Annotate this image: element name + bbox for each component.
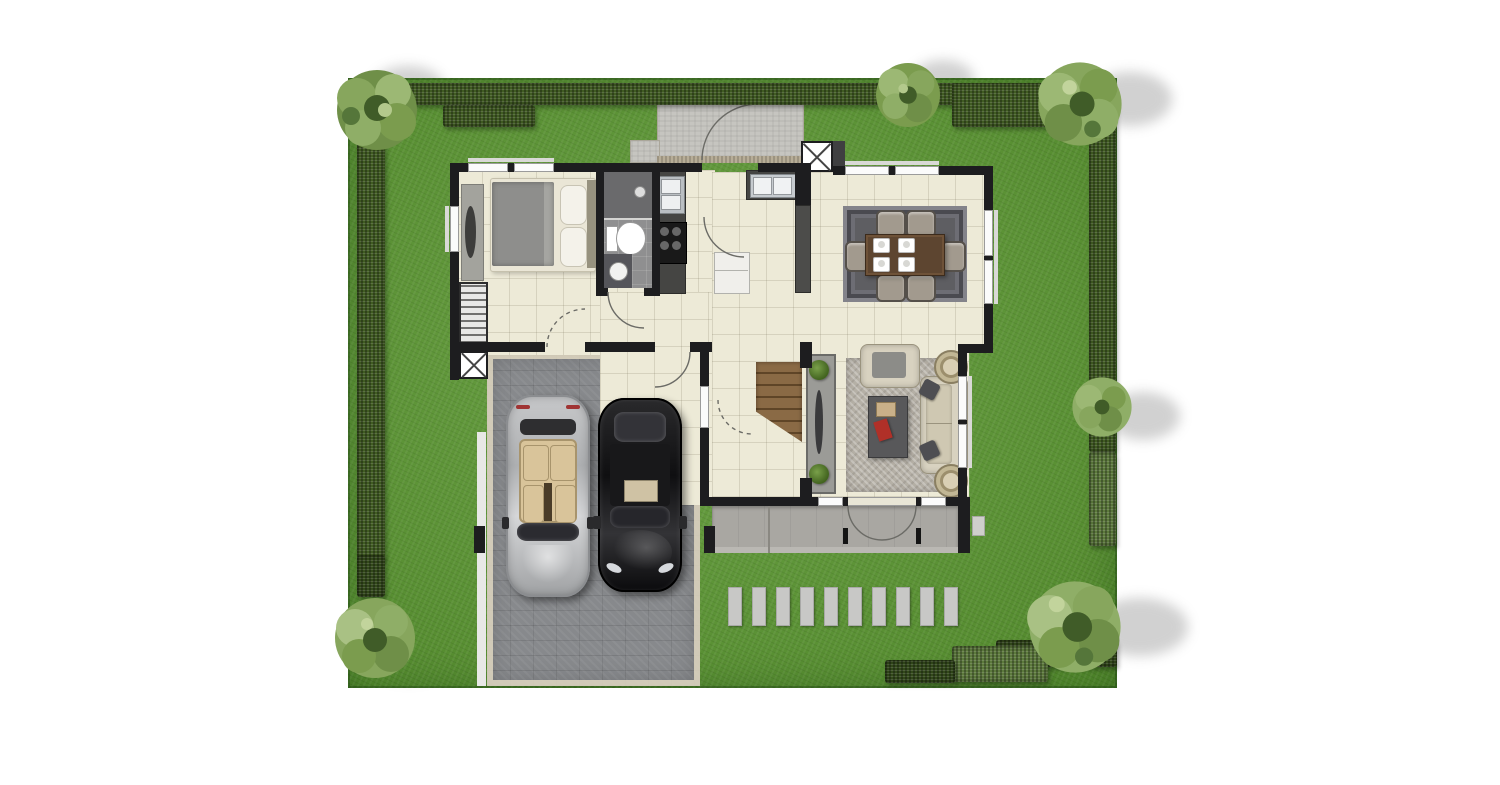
stepping-stone	[776, 587, 790, 626]
porch-threshold	[657, 156, 802, 163]
bed-pillow	[560, 185, 587, 225]
taillight	[516, 405, 530, 409]
terrace-door-opening	[848, 497, 916, 506]
window	[818, 497, 843, 506]
dining-chair	[906, 274, 936, 302]
window-sill	[845, 161, 939, 165]
glass-partition	[604, 218, 652, 220]
window-sill	[968, 376, 972, 468]
wall-stub	[800, 342, 812, 368]
car-seat	[555, 485, 576, 523]
fridge	[714, 252, 750, 294]
wall-partition	[644, 288, 660, 296]
stepping-stone	[800, 587, 814, 626]
window-sill	[994, 210, 998, 304]
hood-highlight	[520, 545, 576, 585]
window	[450, 206, 459, 252]
car-seat	[550, 445, 576, 481]
window	[895, 166, 939, 175]
sink-basin	[661, 195, 681, 210]
stepping-stone	[752, 587, 766, 626]
car-seat	[523, 445, 549, 481]
hedge-left-end	[357, 555, 385, 597]
armchair-cushion	[872, 352, 906, 378]
burner	[660, 241, 669, 250]
place-setting	[873, 238, 890, 253]
stepping-stone	[920, 587, 934, 626]
driveway-curb	[477, 432, 486, 686]
silver-convertible	[506, 395, 590, 597]
wall-stub	[800, 478, 812, 506]
wall-partition	[652, 163, 660, 295]
windshield	[610, 506, 670, 528]
bench-runner	[465, 206, 476, 258]
hedge-right-lower	[1089, 452, 1116, 546]
terrace-joint	[768, 505, 770, 553]
bed-pillow	[560, 227, 587, 267]
window	[984, 210, 993, 256]
burner	[672, 227, 681, 236]
side-mirror	[679, 516, 687, 529]
window-sill	[445, 206, 449, 252]
dining-chair	[876, 274, 906, 302]
tray	[876, 402, 896, 417]
stepping-stone	[848, 587, 862, 626]
sink-basin	[773, 177, 792, 195]
ac-pad	[972, 516, 985, 536]
hedge-right-upper	[1089, 100, 1116, 452]
center-console	[544, 483, 552, 521]
sink-basin	[753, 177, 772, 195]
terrace-door-leaf	[916, 528, 921, 544]
rear-window	[614, 412, 666, 442]
hedge-bottom-left-strip	[885, 660, 955, 683]
terrace-step-edge	[712, 547, 958, 553]
window	[958, 376, 967, 420]
entry-porch	[657, 95, 804, 163]
sunroof	[624, 480, 658, 502]
window	[514, 163, 554, 172]
wall-stub	[795, 163, 811, 205]
wall	[585, 342, 655, 352]
console-runner	[815, 390, 823, 454]
wall-corner-column	[958, 497, 970, 553]
garage-pillar	[704, 526, 715, 553]
wall	[958, 344, 993, 353]
stepping-stone	[872, 587, 886, 626]
burner	[660, 227, 669, 236]
water-heater-unit	[459, 351, 488, 379]
potted-plant	[809, 360, 829, 380]
bed-headboard	[587, 180, 596, 268]
burner	[672, 241, 681, 250]
window	[921, 497, 946, 506]
place-setting	[873, 257, 890, 272]
car-seat	[523, 485, 544, 523]
shower-head-icon	[634, 186, 646, 198]
side-mirror	[593, 516, 601, 529]
pantry-unit	[795, 205, 811, 293]
window	[468, 163, 508, 172]
place-setting	[898, 257, 915, 272]
wall-partition	[596, 163, 604, 295]
window	[700, 386, 709, 428]
hedge-top-right-deep	[952, 83, 1090, 127]
wall-niche	[450, 342, 459, 380]
hedge-left	[357, 98, 385, 560]
stepping-stone	[728, 587, 742, 626]
side-mirror	[502, 517, 509, 529]
porch-step	[630, 140, 660, 163]
wash-basin	[609, 262, 628, 281]
garage-pillar	[474, 526, 485, 553]
window	[845, 166, 889, 175]
tree-shadow	[1106, 392, 1180, 440]
potted-plant	[809, 464, 829, 484]
hedge-top-left-inner	[443, 105, 535, 127]
black-sedan	[598, 398, 682, 592]
window	[958, 424, 967, 468]
bed-blanket	[492, 182, 554, 266]
taillight	[566, 405, 580, 409]
floor-plan-canvas	[0, 0, 1500, 785]
hedge-bottom-light	[952, 646, 1048, 682]
toilet-bowl	[616, 222, 646, 255]
window	[984, 260, 993, 304]
fridge-door-line	[714, 270, 748, 271]
sofa-seat-divider	[926, 423, 952, 424]
stepping-stone	[824, 587, 838, 626]
windshield	[517, 523, 579, 541]
wall-partition	[596, 288, 608, 296]
rear-terrace	[712, 505, 958, 553]
stepping-stone	[944, 587, 958, 626]
sink-basin	[661, 179, 681, 194]
trunk-line	[520, 419, 576, 435]
place-setting	[898, 238, 915, 253]
terrace-door-leaf	[843, 528, 848, 544]
window-sill	[468, 158, 554, 162]
stepping-stone	[896, 587, 910, 626]
wardrobe	[459, 282, 488, 350]
